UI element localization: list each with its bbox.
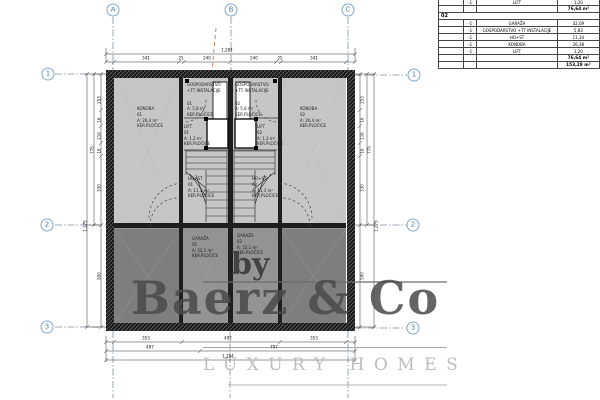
room-label-konoba-02: KONOBA 02 A: 26,4 m² KER.PLOČICE [300, 106, 326, 129]
table-cell-empty [439, 27, 464, 34]
grid-bubble-row-2-right: 2 [407, 219, 420, 232]
table-cell-room: GARAŽA [477, 20, 558, 27]
area-summary-table: -1 LIFT 1,20 76,64 m² 02 -1 GARAŽA 32,09… [438, 0, 600, 69]
dim-bottom1-seg-3: 353 [310, 336, 318, 341]
room-label-hobi-02: HO+ST 02 A: 11,3 m² KER.PLOČICE [252, 176, 278, 199]
room-label-konoba-01: KONOBA 01 A: 26,4 m² KER.PLOČICE [137, 106, 163, 129]
grid-bubble-col-c: C [342, 4, 355, 17]
grid-bubble-col-a: A [107, 4, 120, 17]
table-row-subtotal: 76,64 m² [439, 6, 600, 13]
table-row: -1 KONOBA 26,38 [439, 41, 600, 48]
dim-right-seg-5: 330 [360, 184, 365, 192]
room-finish: KER.PLOČICE [300, 123, 326, 129]
room-name-2: +TT INSTALACIJE [187, 88, 221, 94]
grid-bubble-col-b: B [225, 4, 238, 17]
table-row: -1 GOSPODARSTVO +TT INSTALACIJE 5,83 [439, 27, 600, 34]
room-finish: KER.PLOČICE [187, 112, 221, 118]
grid-bubble-row-1-right: 1 [408, 69, 421, 82]
dim-top-seg-2: 25 [178, 56, 183, 61]
watermark-tagline: LUXURY HOMES [203, 355, 467, 375]
room-label-lift-02: LIFT 02 A: 1,2 m² KER.PLOČICE [257, 124, 283, 147]
dim-top-total: 1,284 [221, 48, 232, 53]
room-finish: KER.PLOČICE [257, 141, 283, 147]
table-row: -1 GARAŽA 32,09 [439, 20, 600, 27]
table-cell-empty [439, 41, 464, 48]
table-section-header: 02 [439, 13, 600, 20]
grid-bubble-row-3-left: 3 [41, 321, 54, 334]
dim-right-seg-1: 253 [360, 96, 365, 104]
dim-right-total: 1,275 [374, 220, 379, 231]
dim-bottom2-seg-1: 487 [146, 345, 154, 350]
dim-left-seg-1: 253 [97, 96, 102, 104]
watermark-brand: Baerz & Co [131, 271, 440, 325]
table-cell-subtotal: 76,64 m² [557, 55, 599, 62]
room-name: GOSPODARSTVO [187, 82, 221, 88]
table-cell-value: 26,38 [557, 41, 599, 48]
room-finish: KER.PLOČICE [235, 112, 269, 118]
table-row: -1 LIFT 1,20 [439, 48, 600, 55]
table-row: -1 HO+ST 11,34 [439, 34, 600, 41]
table-cell-empty [464, 62, 477, 69]
room-label-hobi-01: HO+ST 01 A: 11,3 m² KER.PLOČICE [188, 176, 214, 199]
dim-top-seg-6: 341 [310, 56, 318, 61]
dim-left-seg-3: 116 [97, 132, 102, 140]
dim-left-seg-6: 500 [97, 272, 102, 280]
table-cell-value: 5,83 [557, 27, 599, 34]
room-label-lift-01: LIFT 01 A: 1,2 m² KER.PLOČICE [184, 124, 210, 147]
table-cell-empty [477, 6, 558, 13]
table-cell-value: 1,20 [557, 48, 599, 55]
table-cell-empty [439, 62, 464, 69]
dim-right-seg-4: 16 [360, 148, 365, 153]
dim-bottom1-seg-2: 492 [224, 336, 232, 341]
room-finish: KER.PLOČICE [188, 193, 214, 199]
dim-top-seg-5: 25 [277, 56, 282, 61]
table-cell-qty: -1 [464, 41, 477, 48]
dim-bottom2-seg-2: 797 [270, 345, 278, 350]
room-label-garaza-01: GARAŽA 01 A: 32,1 m² KER.PLOČICE [192, 236, 218, 259]
table-cell-empty [464, 6, 477, 13]
table-cell-empty [439, 55, 464, 62]
table-cell-room: LIFT [477, 48, 558, 55]
table-cell-qty: -1 [464, 34, 477, 41]
dim-left-seg-5: 330 [97, 184, 102, 192]
dim-right-seg-3: 116 [360, 132, 365, 140]
dim-right-seg-2: 16 [360, 117, 365, 122]
table-row-total: 153,28 m² [439, 62, 600, 69]
table-cell-room: GOSPODARSTVO +TT INSTALACIJE [477, 27, 558, 34]
dim-bottom1-seg-1: 353 [142, 336, 150, 341]
dim-top-seg-1: 341 [142, 56, 150, 61]
table-row-section: 02 [439, 13, 600, 20]
table-cell-qty: -1 [464, 48, 477, 55]
table-cell-empty [477, 55, 558, 62]
dim-left-seg-4: 16 [97, 148, 102, 153]
table-cell-empty [464, 55, 477, 62]
room-finish: KER.PLOČICE [184, 141, 210, 147]
table-cell-empty [439, 20, 464, 27]
room-name-2: +TT INSTALACIJE [235, 88, 269, 94]
table-cell-qty: -1 [464, 20, 477, 27]
table-row-subtotal: 76,64 m² [439, 55, 600, 62]
table-cell-empty [439, 48, 464, 55]
table-cell-room: KONOBA [477, 41, 558, 48]
dim-top-seg-3: 240 [203, 56, 211, 61]
table-cell-grand-total: 153,28 m² [557, 62, 599, 69]
dim-right-subtotal: 775 [367, 146, 372, 154]
room-name: GOSPODARSTVO [235, 82, 269, 88]
room-finish: KER.PLOČICE [252, 193, 278, 199]
room-label-gospodarstvo-01: GOSPODARSTVO +TT INSTALACIJE 01 A: 5,8 m… [187, 82, 221, 118]
room-label-gospodarstvo-02: GOSPODARSTVO +TT INSTALACIJE 02 A: 5,8 m… [235, 82, 269, 118]
grid-bubble-row-2-left: 2 [41, 219, 54, 232]
dim-left-seg-2: 16 [97, 117, 102, 122]
table-cell-empty [477, 62, 558, 69]
table-cell-qty: -1 [464, 27, 477, 34]
dim-left-total: 1,275 [83, 220, 88, 231]
dim-top-seg-4: 240 [250, 56, 258, 61]
grid-bubble-row-1-left: 1 [42, 68, 55, 81]
table-cell-room: HO+ST [477, 34, 558, 41]
dim-left-subtotal: 775 [90, 146, 95, 154]
room-finish: KER.PLOČICE [192, 253, 218, 259]
table-cell-empty [439, 6, 464, 13]
table-cell-value: 11,34 [557, 34, 599, 41]
table-cell-subtotal: 76,64 m² [557, 6, 599, 13]
table-cell-empty [439, 34, 464, 41]
room-finish: KER.PLOČICE [137, 123, 163, 129]
table-cell-value: 32,09 [557, 20, 599, 27]
floor-plan-page: A B C 1 2 3 1 2 3 1,284 341 25 240 240 2… [0, 0, 600, 400]
